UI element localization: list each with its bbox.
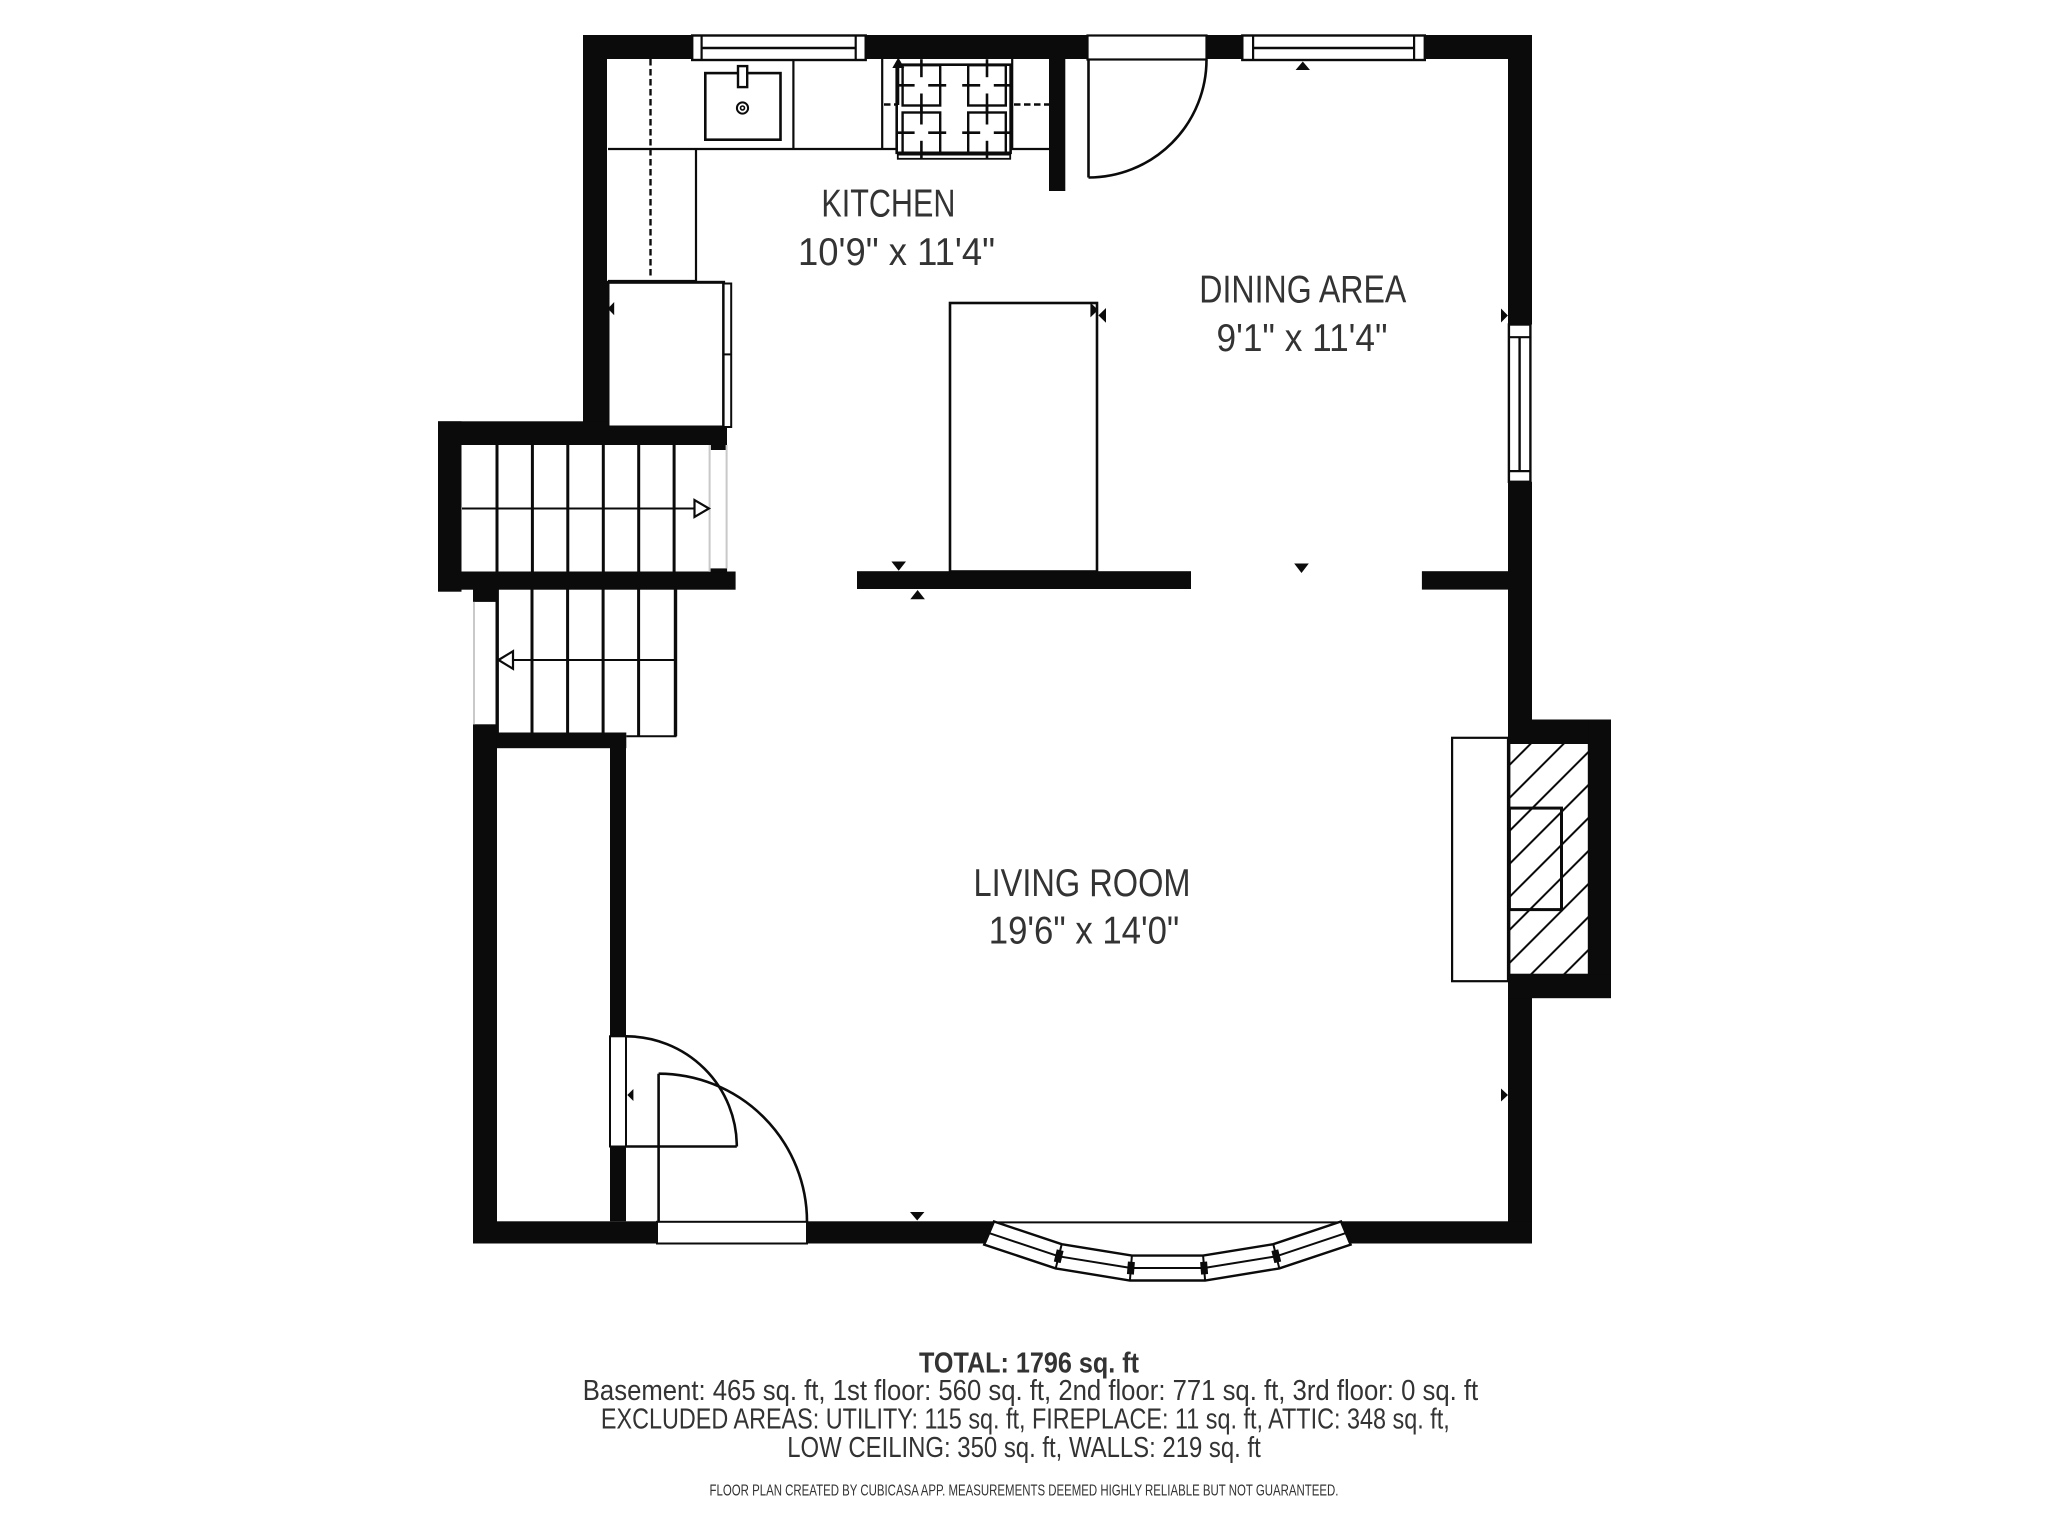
svg-text:10'9" x 11'4": 10'9" x 11'4" bbox=[798, 231, 995, 274]
svg-text:Basement: 465 sq. ft, 1st floo: Basement: 465 sq. ft, 1st floor: 560 sq.… bbox=[583, 1375, 1478, 1407]
svg-text:LOW CEILING: 350 sq. ft, WALLS: LOW CEILING: 350 sq. ft, WALLS: 219 sq. … bbox=[787, 1432, 1261, 1464]
svg-text:DINING AREA: DINING AREA bbox=[1199, 269, 1406, 312]
svg-text:19'6" x 14'0": 19'6" x 14'0" bbox=[989, 910, 1180, 953]
svg-text:9'1" x 11'4": 9'1" x 11'4" bbox=[1217, 317, 1388, 360]
svg-text:KITCHEN: KITCHEN bbox=[821, 183, 955, 226]
svg-text:FLOOR PLAN CREATED BY CUBICASA: FLOOR PLAN CREATED BY CUBICASA APP. MEAS… bbox=[710, 1483, 1339, 1500]
svg-text:LIVING ROOM: LIVING ROOM bbox=[974, 862, 1191, 905]
svg-text:EXCLUDED AREAS: UTILITY: 115 s: EXCLUDED AREAS: UTILITY: 115 sq. ft, FIR… bbox=[601, 1403, 1450, 1435]
